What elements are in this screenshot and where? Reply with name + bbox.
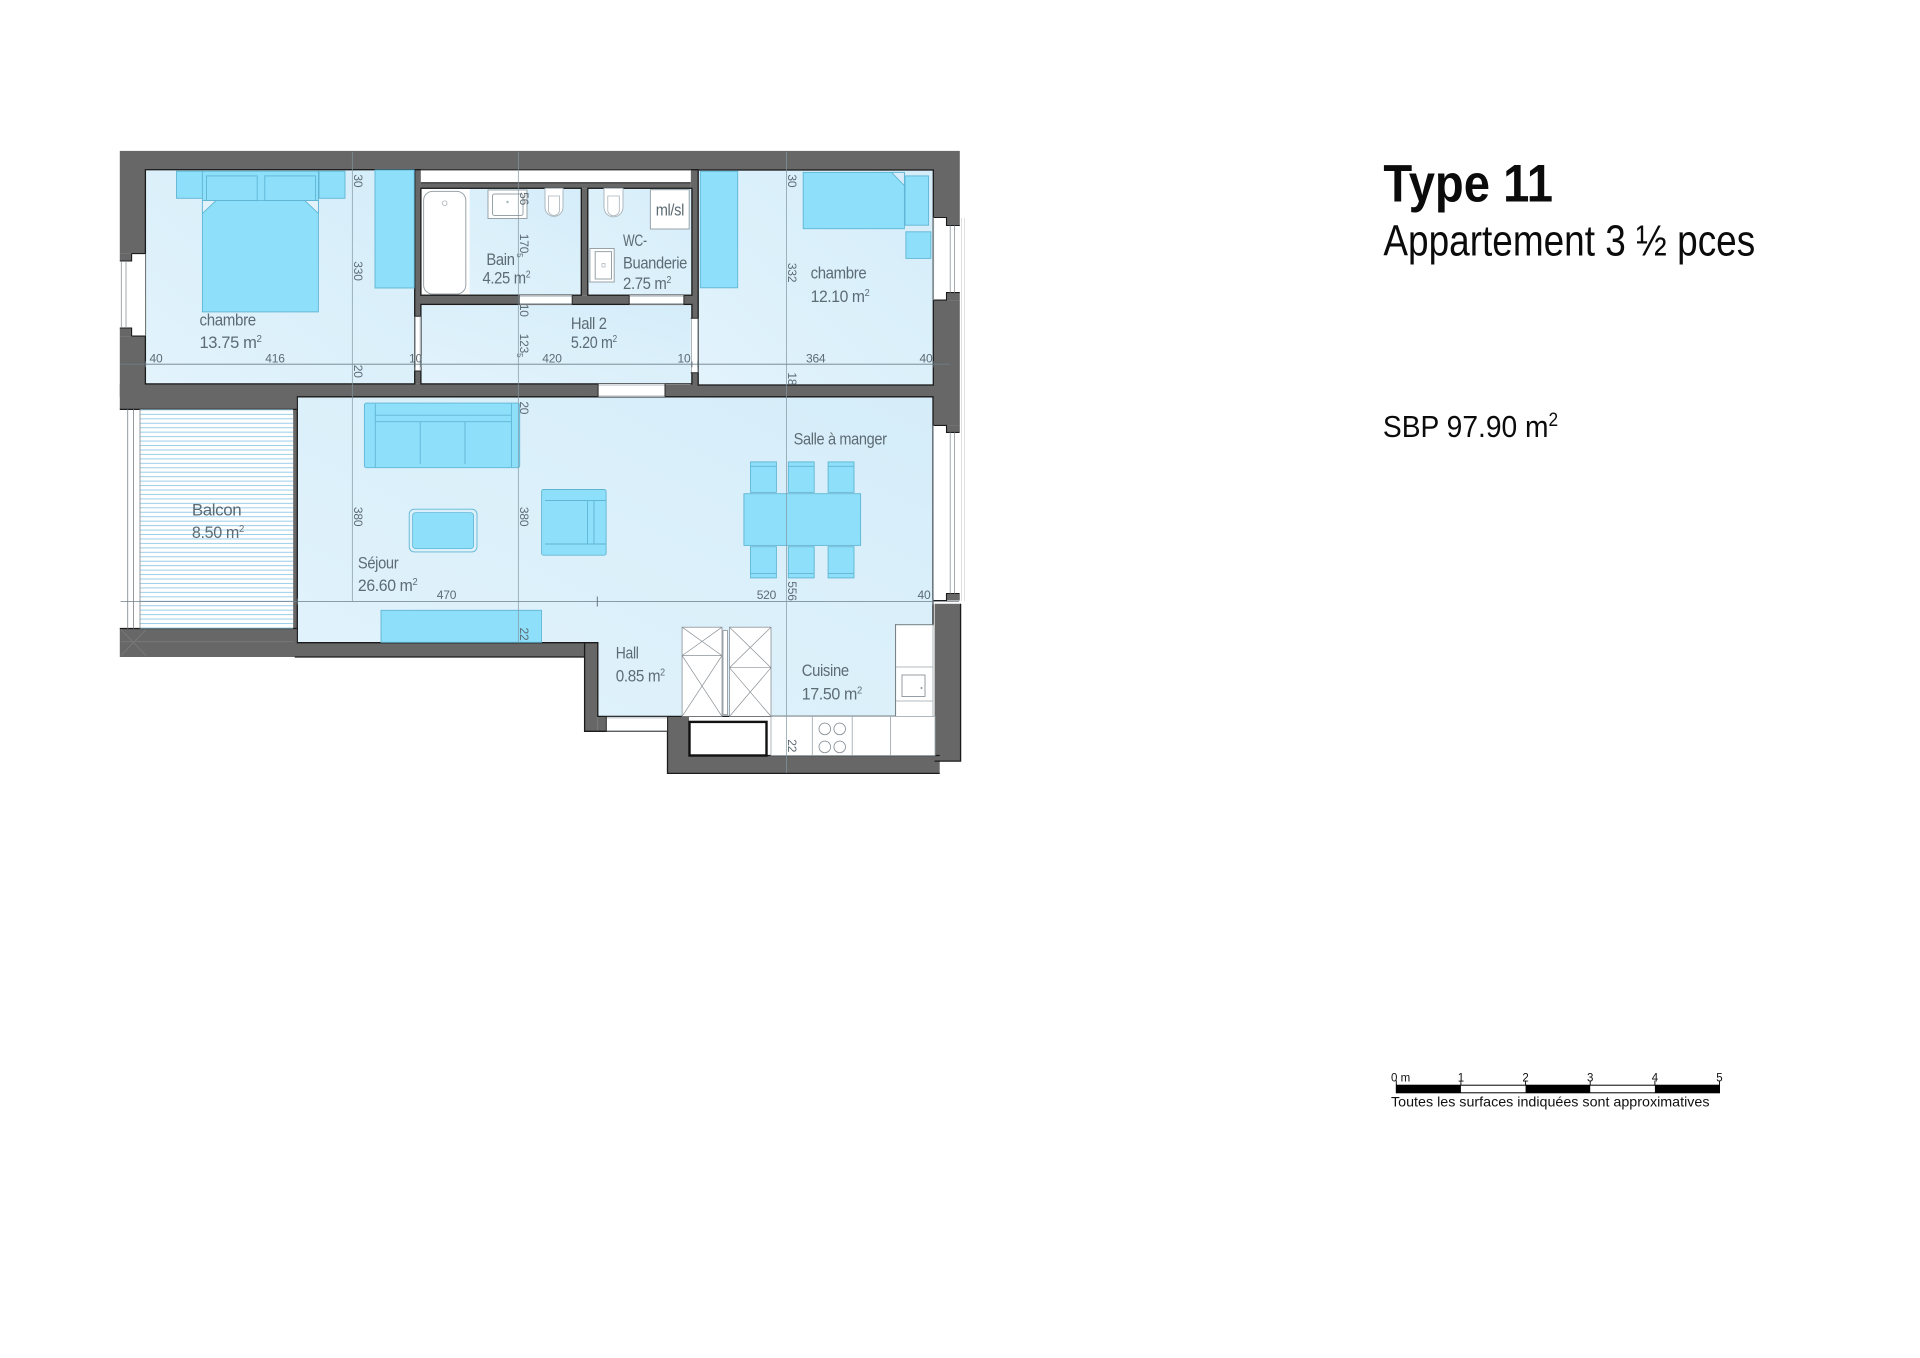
svg-text:Cuisine: Cuisine [802, 661, 849, 680]
svg-text:26.60 m2: 26.60 m2 [358, 576, 418, 595]
svg-text:56: 56 [517, 192, 531, 205]
svg-text:Buanderie: Buanderie [623, 253, 687, 272]
svg-text:chambre: chambre [200, 310, 256, 329]
svg-text:416: 416 [265, 351, 285, 365]
svg-text:ml/sl: ml/sl [656, 201, 684, 220]
svg-text:0.85 m2: 0.85 m2 [616, 667, 666, 686]
svg-text:30: 30 [785, 174, 799, 187]
svg-text:Type 11: Type 11 [1383, 154, 1553, 213]
svg-text:0 m: 0 m [1391, 1073, 1410, 1085]
svg-text:18: 18 [785, 372, 799, 385]
svg-text:10: 10 [409, 351, 422, 365]
svg-text:Hall: Hall [616, 644, 639, 663]
svg-text:Toutes les surfaces indiquées: Toutes les surfaces indiquées sont appro… [1391, 1094, 1710, 1110]
svg-text:4.25 m2: 4.25 m2 [483, 269, 531, 288]
svg-text:22: 22 [785, 739, 799, 752]
svg-text:Salle à manger: Salle à manger [794, 430, 888, 449]
svg-text:1: 1 [1458, 1073, 1464, 1085]
svg-text:40: 40 [920, 351, 933, 365]
svg-text:10: 10 [517, 304, 531, 317]
svg-text:20: 20 [517, 401, 531, 414]
svg-text:Séjour: Séjour [358, 554, 399, 573]
svg-text:3: 3 [1587, 1073, 1593, 1085]
svg-text:13.75 m2: 13.75 m2 [200, 333, 263, 352]
svg-text:17.50 m2: 17.50 m2 [802, 685, 863, 704]
svg-text:22: 22 [517, 628, 531, 641]
svg-text:5.20 m2: 5.20 m2 [571, 333, 618, 352]
svg-text:330: 330 [351, 261, 365, 281]
svg-text:20: 20 [351, 365, 365, 378]
svg-text:5: 5 [1716, 1073, 1722, 1085]
svg-text:4: 4 [1652, 1073, 1659, 1085]
svg-text:12.10 m2: 12.10 m2 [811, 287, 871, 306]
svg-text:40: 40 [918, 588, 931, 602]
svg-text:SBP 97.90 m2: SBP 97.90 m2 [1383, 409, 1558, 444]
svg-text:Hall 2: Hall 2 [571, 314, 607, 333]
svg-text:556: 556 [785, 581, 799, 601]
svg-text:10: 10 [678, 351, 691, 365]
svg-text:520: 520 [757, 588, 777, 602]
svg-text:Appartement 3 ½ pces: Appartement 3 ½ pces [1383, 215, 1755, 265]
svg-text:420: 420 [542, 351, 562, 365]
svg-text:Bain: Bain [486, 250, 514, 269]
svg-text:470: 470 [437, 588, 457, 602]
svg-text:40: 40 [150, 351, 163, 365]
svg-text:380: 380 [517, 507, 531, 527]
svg-text:chambre: chambre [811, 264, 867, 283]
svg-text:30: 30 [351, 174, 365, 187]
svg-text:2.75 m2: 2.75 m2 [623, 274, 672, 293]
svg-text:380: 380 [351, 507, 365, 527]
svg-text:364: 364 [806, 351, 826, 365]
svg-text:332: 332 [785, 263, 799, 283]
svg-text:WC-: WC- [623, 231, 647, 250]
svg-text:8.50 m2: 8.50 m2 [192, 523, 245, 542]
svg-text:Balcon: Balcon [192, 500, 241, 519]
svg-text:2: 2 [1522, 1073, 1528, 1085]
